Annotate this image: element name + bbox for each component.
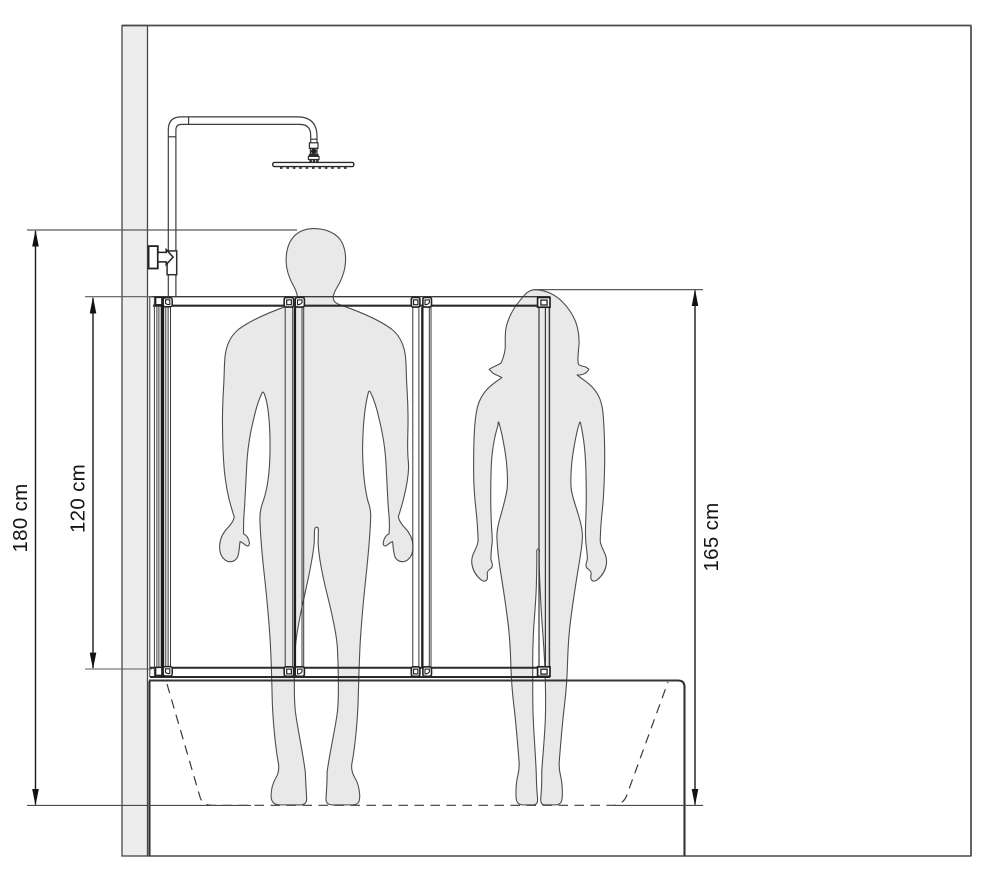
svg-text:165 cm: 165 cm (700, 502, 723, 571)
svg-text:180 cm: 180 cm (9, 483, 32, 552)
svg-text:120 cm: 120 cm (67, 464, 90, 533)
